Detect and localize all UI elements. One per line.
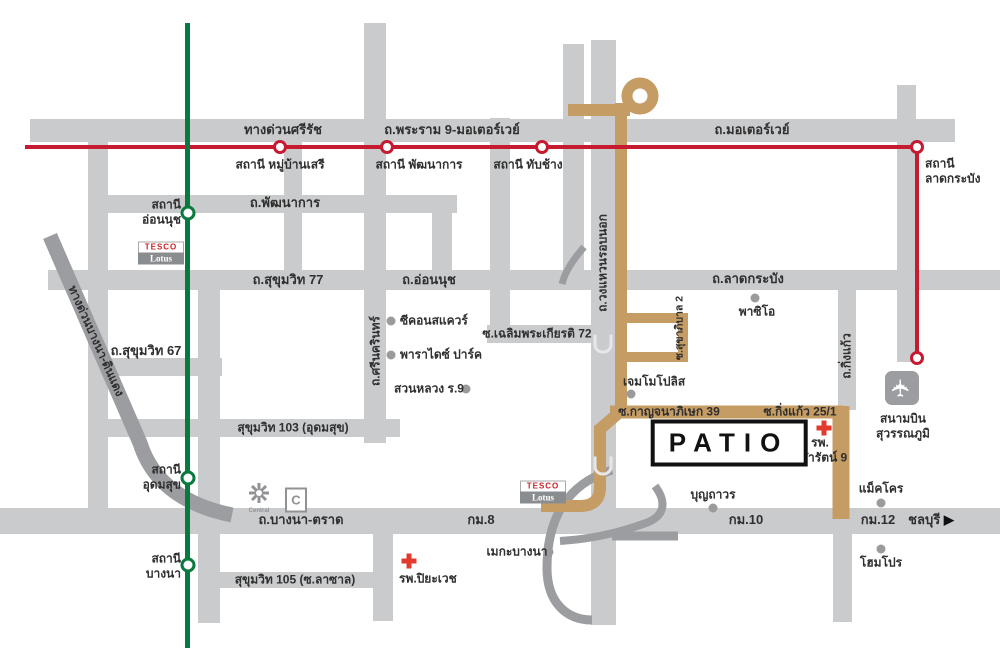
project-logo-patio: PATIO [651, 420, 808, 467]
road-label-sukhumvit67: ถ.สุขุมวิท 67 [111, 343, 182, 359]
road-label-pattanakan: ถ.พัฒนาการ [250, 195, 320, 211]
airplane-icon: ✈ [890, 378, 914, 398]
road-label-kingkaeo: ถ.กิ่งแก้ว [840, 333, 855, 378]
road-vert-563 [563, 44, 584, 290]
poi-dot-boonthavorn [709, 504, 718, 513]
road-label-km10: กม.10 [729, 512, 764, 528]
station-label-latkrabang: สถานี ลาดกระบัง [925, 156, 981, 185]
station-marker-suvarnabhumi-terminus [910, 351, 924, 365]
uturn-icon [594, 457, 613, 476]
road-label-srinakarin: ถ.ศรีนครินทร์ [369, 316, 384, 386]
road-label-sukhumvit77: ถ.สุขุมวิท 77 [253, 272, 324, 288]
station-marker-udomsuk [181, 471, 196, 486]
central-city-logo: C [285, 488, 307, 513]
airport-rail-link-line [25, 145, 917, 149]
location-map: ทางด่วนศรีรัช ถ.พระราม 9-มอเตอร์เวย์ ถ.ม… [0, 0, 1000, 654]
place-label-suanluang: สวนหลวง ร.9 [394, 382, 464, 397]
place-label-piyavech: รพ.ปิยะเวช [399, 572, 457, 587]
road-label-outer-ring: ถ.วงแหวนรอบนอก [596, 214, 611, 312]
place-label-boonthavorn: บุญถาวร [690, 488, 735, 503]
station-label-mubanseri: สถานี หมู่บ้านเสรี [235, 158, 324, 173]
tesco-logo-text: TESCO [138, 242, 184, 253]
road-label-chonburi: ชลบุรี ▶ [908, 512, 954, 528]
bts-sukhumvit-line [185, 23, 190, 648]
road-label-motorway: ถ.มอเตอร์เวย์ [715, 122, 790, 138]
station-marker-phatthanakan [380, 140, 394, 154]
station-label-onnut: สถานี อ่อนนุช [142, 197, 181, 226]
hospital-cross-icon [401, 553, 418, 570]
station-marker-latkrabang [910, 140, 924, 154]
poi-dot-gemopolis [627, 390, 636, 399]
road-label-sukhumvit105: สุขุมวิท 105 (ซ.ลาซาล) [235, 573, 356, 588]
road-lasalle-vert [373, 534, 393, 621]
poi-dot-homepro [877, 545, 886, 554]
central-logo-text: Central [248, 509, 270, 514]
road-airport-access [897, 85, 916, 362]
road-label-kingkaeo25-1: ซ.กิ่งแก้ว 25/1 [763, 405, 836, 420]
road-vert-490 [490, 118, 510, 343]
lotus-logo-text: Lotus [138, 253, 184, 265]
place-label-suvarnabhumi: สนามบิน สุวรรณภูมิ [876, 411, 930, 440]
station-label-thapchang: สถานี ทับช้าง [493, 158, 562, 173]
central-flower-icon [248, 482, 270, 504]
tesco-logo-text: TESCO [520, 481, 566, 492]
poi-dot-paradise [387, 351, 396, 360]
road-label-sukhaphiban2: ซ.สุขาภิบาล 2 [674, 296, 687, 360]
chonburi-arrow-icon: ▶ [944, 512, 954, 528]
road-label-kanchanaphisek39: ซ.กาญจนาภิเษก 39 [618, 405, 720, 420]
road-label-km8: กม.8 [467, 512, 494, 528]
route-exit-loop [627, 83, 653, 109]
road-label-km12: กม.12 [861, 512, 896, 528]
place-label-makro: แม็คโคร [859, 482, 904, 497]
road-label-expressway-sirat: ทางด่วนศรีรัช [244, 122, 322, 138]
road-vert-200 [198, 280, 220, 623]
road-label-bangna-trat: ถ.บางนา-ตราด [258, 512, 343, 528]
road-label-rama9-motorway: ถ.พระราม 9-มอเตอร์เวย์ [384, 122, 519, 138]
airport-rail-link-line-vertical [915, 147, 919, 358]
place-label-paradise: พาราไดซ์ ปาร์ค [400, 348, 482, 363]
road-vert-stub [432, 202, 452, 282]
station-label-phatthanakan: สถานี พัฒนาการ [375, 158, 462, 173]
station-marker-bangna [181, 558, 196, 573]
road-kingkaeo-south [833, 534, 852, 622]
road-label-ladkrabang: ถ.ลาดกระบัง [712, 271, 784, 287]
road-label-onnut: ถ.อ่อนนุช [402, 272, 456, 288]
place-label-homepro: โฮมโปร [860, 556, 902, 571]
road-label-sukhumvit103: สุขุมวิท 103 (อุดมสุข) [237, 421, 348, 436]
hospital-cross-icon [816, 420, 833, 437]
place-label-gemopolis: เจมโมโปลิส [623, 375, 685, 390]
road-outer-ring [591, 40, 616, 625]
place-label-megabangna: เมกะบางนา [487, 545, 548, 560]
airport-icon: ✈ [885, 371, 919, 405]
chonburi-label: ชลบุรี [908, 512, 940, 527]
road-bangna-trat [0, 508, 1000, 534]
tesco-lotus-logo: TESCO Lotus [138, 242, 184, 265]
lotus-logo-text: Lotus [520, 492, 566, 504]
station-marker-thapchang [535, 140, 549, 154]
uturn-icon [594, 335, 613, 354]
place-label-seacon: ซีคอนสแควร์ [400, 314, 468, 329]
place-label-paseo: พาซิโอ [739, 305, 775, 320]
station-marker-mubanseri [273, 140, 287, 154]
station-label-bangna: สถานี บางนา [146, 551, 181, 580]
station-marker-onnut [181, 206, 196, 221]
central-logo: Central [248, 482, 270, 514]
station-label-udomsuk: สถานี อุดมสุข [143, 462, 181, 491]
poi-dot-makro [877, 499, 886, 508]
tesco-lotus-logo: TESCO Lotus [520, 481, 566, 504]
road-label-chalermprakiat72: ซ.เฉลิมพระเกียรติ 72 [482, 327, 591, 342]
road-onnut-ladkrabang [48, 270, 1000, 290]
poi-dot-seacon [387, 317, 396, 326]
poi-dot-paseo [751, 294, 760, 303]
